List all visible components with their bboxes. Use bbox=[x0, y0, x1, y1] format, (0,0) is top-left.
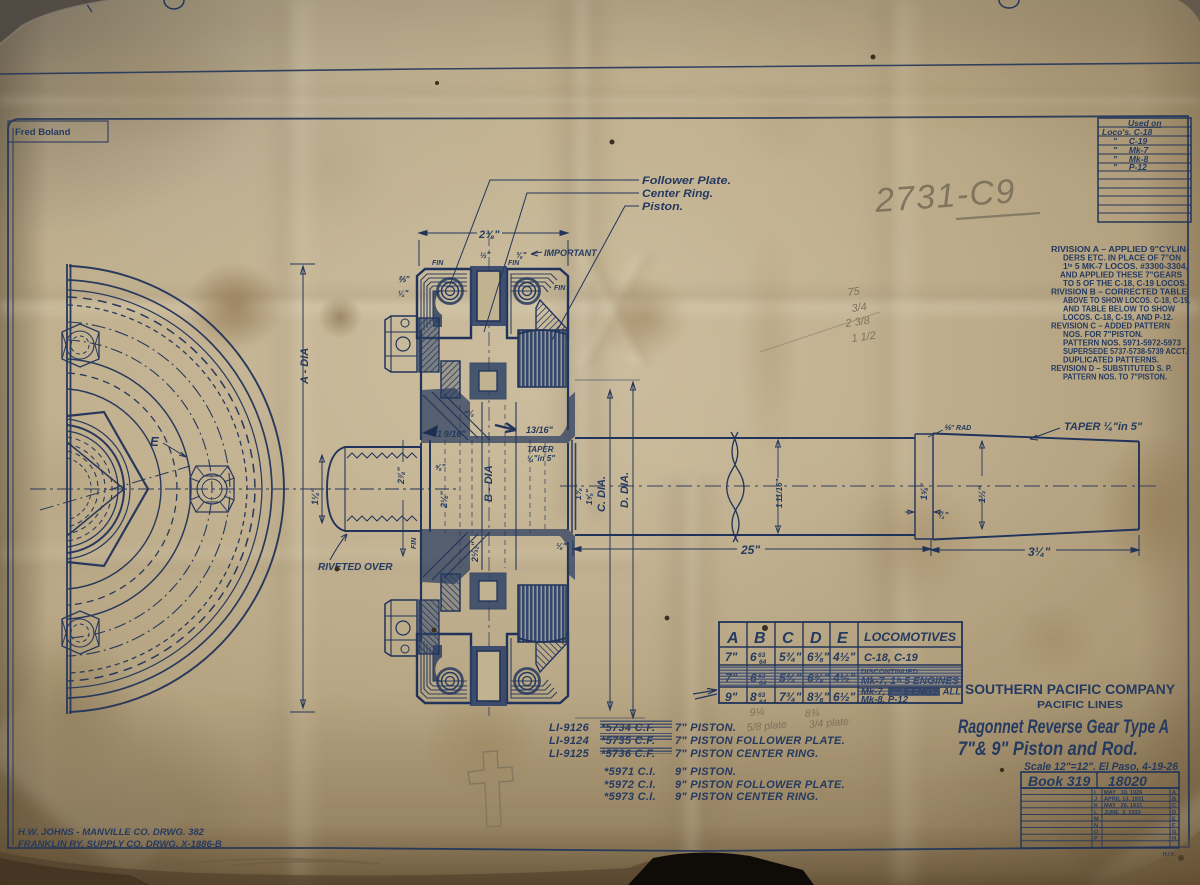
svg-text:K: K bbox=[1094, 803, 1098, 809]
svg-text:4½": 4½" bbox=[832, 650, 856, 664]
svg-text:1 11/16": 1 11/16" bbox=[775, 479, 784, 508]
svg-text:2⅓₂": 2⅓₂" bbox=[470, 541, 480, 563]
svg-text:L: L bbox=[1094, 810, 1098, 816]
svg-text:B: B bbox=[754, 630, 766, 647]
svg-text:Mk-8, P-12: Mk-8, P-12 bbox=[861, 695, 909, 706]
svg-text:¼": ¼" bbox=[398, 289, 409, 298]
svg-text:FRANKLIN RY. SUPPLY CO. DRWG.: FRANKLIN RY. SUPPLY CO. DRWG. X-1886-B bbox=[18, 839, 222, 850]
svg-text:A: A bbox=[1172, 790, 1176, 796]
svg-text:63: 63 bbox=[758, 652, 766, 659]
svg-text:1⅝": 1⅝" bbox=[584, 488, 594, 505]
svg-text:1⅜": 1⅜" bbox=[573, 483, 583, 500]
svg-text:C: C bbox=[782, 630, 794, 647]
svg-text:APRIL 13, 1931: APRIL 13, 1931 bbox=[1104, 797, 1144, 803]
svg-text:E: E bbox=[837, 630, 849, 647]
svg-text:*5973 C.I.: *5973 C.I. bbox=[604, 791, 656, 803]
svg-text:⅝": ⅝" bbox=[435, 463, 446, 472]
svg-text:5¾": 5¾" bbox=[779, 650, 802, 664]
svg-text:A - DIA: A - DIA bbox=[299, 348, 311, 385]
svg-text:5/8 plate: 5/8 plate bbox=[746, 719, 787, 734]
svg-text:Piston.: Piston. bbox=[642, 201, 683, 213]
svg-text:IMPORTANT: IMPORTANT bbox=[544, 248, 598, 258]
svg-text:LI-9126: LI-9126 bbox=[549, 722, 590, 734]
svg-text:H.W. JOHNS - MANVILLE CO. DRWG: H.W. JOHNS - MANVILLE CO. DRWG. 382 bbox=[18, 827, 205, 838]
svg-text:1¼": 1¼" bbox=[310, 487, 320, 505]
svg-text:9" PISTON FOLLOWER PLATE.: 9" PISTON FOLLOWER PLATE. bbox=[675, 779, 845, 791]
svg-text:64: 64 bbox=[759, 659, 767, 666]
svg-text:" P-12: " P-12 bbox=[1113, 162, 1147, 172]
svg-text:C: C bbox=[1172, 803, 1176, 809]
svg-text:2¼": 2¼" bbox=[439, 490, 449, 509]
svg-text:7" PISTON CENTER RING.: 7" PISTON CENTER RING. bbox=[675, 748, 819, 760]
svg-text:E: E bbox=[150, 434, 159, 449]
svg-text:6⅜": 6⅜" bbox=[807, 650, 830, 664]
svg-text:1⅝": 1⅝" bbox=[919, 482, 929, 500]
svg-text:Follower Plate.: Follower Plate. bbox=[642, 175, 731, 187]
svg-text:P: P bbox=[1094, 836, 1098, 842]
svg-text:25": 25" bbox=[740, 543, 760, 557]
svg-text:⁼⅛: ⁼⅛ bbox=[463, 409, 474, 418]
svg-text:SOUTHERN PACIFIC COMPANY: SOUTHERN PACIFIC COMPANY bbox=[965, 682, 1175, 697]
svg-text:TAPER: TAPER bbox=[527, 445, 554, 454]
svg-text:75: 75 bbox=[847, 285, 862, 299]
svg-text:63: 63 bbox=[758, 692, 766, 699]
svg-text:3¼": 3¼" bbox=[1028, 545, 1051, 559]
svg-text:3/4 plate: 3/4 plate bbox=[808, 716, 849, 731]
svg-text:7" PISTON FOLLOWER PLATE.: 7" PISTON FOLLOWER PLATE. bbox=[675, 735, 845, 747]
svg-text:⅜": ⅜" bbox=[516, 251, 527, 260]
svg-text:MAY 20, 1931: MAY 20, 1931 bbox=[1104, 803, 1142, 809]
svg-text:8: 8 bbox=[750, 690, 757, 704]
svg-text:9": 9" bbox=[725, 690, 738, 704]
svg-text:⅖": ⅖" bbox=[398, 275, 410, 284]
svg-text:D: D bbox=[810, 630, 822, 647]
svg-text:J: J bbox=[1094, 797, 1097, 803]
svg-text:Fred Boland: Fred Boland bbox=[15, 127, 71, 138]
svg-text:1 9/16": 1 9/16" bbox=[437, 429, 466, 439]
svg-text:H: H bbox=[1172, 836, 1176, 842]
svg-text:⅖" RAD: ⅖" RAD bbox=[944, 424, 971, 432]
svg-text:1ⁱˢ 5 MK-7 LOCOS. #3300-3304,: 1ⁱˢ 5 MK-7 LOCOS. #3300-3304, bbox=[1063, 261, 1188, 271]
svg-text:*5971 C.I.: *5971 C.I. bbox=[604, 766, 656, 778]
svg-text:7" PISTON.: 7" PISTON. bbox=[675, 722, 736, 734]
svg-text:B - DIA: B - DIA bbox=[483, 465, 495, 502]
svg-text:⅛": ⅛" bbox=[556, 542, 567, 551]
svg-text:9" PISTON.: 9" PISTON. bbox=[675, 766, 736, 778]
svg-text:F: F bbox=[1172, 823, 1176, 829]
svg-text:FIN: FIN bbox=[554, 285, 566, 292]
svg-text:G: G bbox=[1172, 830, 1176, 836]
svg-text:7": 7" bbox=[725, 650, 738, 664]
svg-text:JUNE 3, 1933: JUNE 3, 1933 bbox=[1104, 810, 1141, 816]
svg-text:¼"in 5": ¼"in 5" bbox=[527, 454, 555, 463]
svg-text:*5972 C.I.: *5972 C.I. bbox=[604, 779, 656, 791]
svg-text:2⅜": 2⅜" bbox=[478, 229, 500, 241]
svg-text:2⅞": 2⅞" bbox=[396, 466, 406, 485]
svg-text:9¼: 9¼ bbox=[749, 706, 765, 719]
svg-text:FIN: FIN bbox=[411, 537, 418, 549]
svg-text:E: E bbox=[1172, 816, 1176, 822]
svg-text:18020: 18020 bbox=[1108, 773, 1147, 789]
svg-text:9" PISTON CENTER RING.: 9" PISTON CENTER RING. bbox=[675, 791, 819, 803]
svg-text:LI-9124: LI-9124 bbox=[549, 735, 589, 747]
svg-text:C. DIA.: C. DIA. bbox=[596, 476, 608, 512]
svg-text:Center Ring.: Center Ring. bbox=[642, 188, 713, 200]
svg-text:6: 6 bbox=[750, 650, 757, 664]
svg-text:3/4: 3/4 bbox=[851, 301, 868, 315]
svg-text:Book 319: Book 319 bbox=[1028, 773, 1090, 789]
svg-text:2731-C9: 2731-C9 bbox=[873, 172, 1017, 220]
svg-text:6½": 6½" bbox=[833, 690, 856, 704]
svg-text:PACIFIC LINES: PACIFIC LINES bbox=[1037, 700, 1123, 711]
svg-text:I: I bbox=[1094, 790, 1096, 796]
svg-text:A: A bbox=[726, 630, 739, 647]
svg-text:FIN: FIN bbox=[508, 260, 520, 267]
svg-text:1 1/2: 1 1/2 bbox=[851, 330, 877, 345]
svg-text:B: B bbox=[1172, 797, 1176, 803]
svg-text:LOCOMOTIVES: LOCOMOTIVES bbox=[864, 630, 956, 644]
svg-text:M: M bbox=[1094, 816, 1099, 822]
svg-text:Ragonnet Reverse Gear Type A: Ragonnet Reverse Gear Type A bbox=[958, 717, 1169, 738]
svg-text:½": ½" bbox=[480, 251, 491, 260]
svg-text:LI-9125: LI-9125 bbox=[549, 748, 590, 760]
svg-text:N: N bbox=[1094, 823, 1098, 829]
svg-text:13/16": 13/16" bbox=[526, 425, 554, 435]
svg-text:8⅜": 8⅜" bbox=[807, 690, 830, 704]
svg-text:C-18, C-19: C-18, C-19 bbox=[864, 652, 919, 664]
svg-text:O: O bbox=[1094, 830, 1099, 836]
svg-text:PATTERN NOS. TO 7"PISTON.: PATTERN NOS. TO 7"PISTON. bbox=[1063, 373, 1167, 382]
svg-text:RIVETED OVER: RIVETED OVER bbox=[318, 562, 393, 573]
svg-text:MAY 10, 1926: MAY 10, 1926 bbox=[1104, 790, 1142, 796]
svg-text:7¾": 7¾" bbox=[779, 690, 802, 704]
svg-text:FIN: FIN bbox=[432, 260, 444, 267]
svg-text:D: D bbox=[1172, 810, 1176, 816]
svg-text:D. DIA.: D. DIA. bbox=[619, 472, 631, 508]
svg-text:7"& 9" Piston and Rod.: 7"& 9" Piston and Rod. bbox=[958, 739, 1138, 760]
svg-text:TAPER ¼"in 5": TAPER ¼"in 5" bbox=[1064, 421, 1143, 433]
